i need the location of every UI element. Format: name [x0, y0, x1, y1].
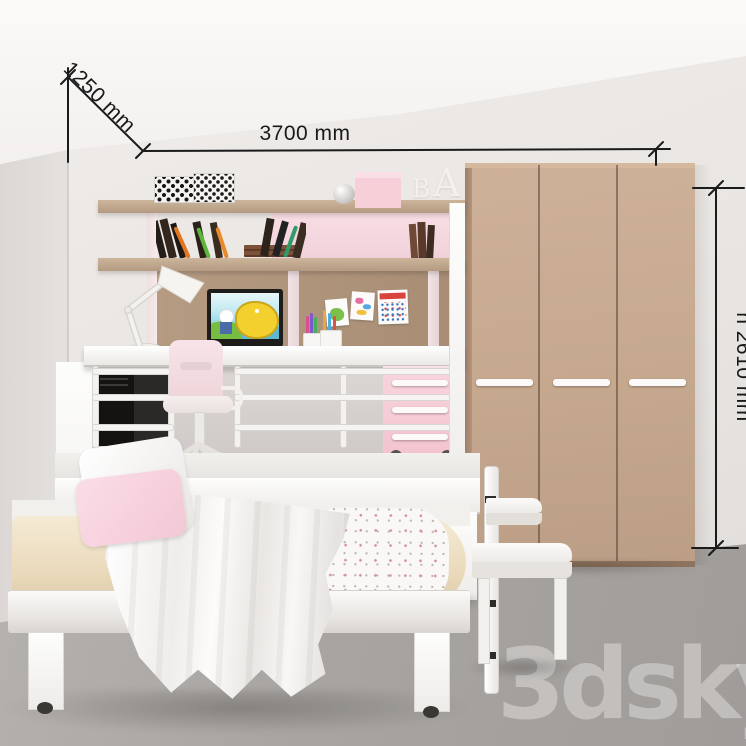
dimension-overlay: 3700 mm 1250 mm h 2610 mm [0, 0, 746, 746]
width-label: 3700 mm [259, 122, 350, 145]
room-render: 3dsky [0, 0, 746, 746]
depth-label: 1250 mm [59, 57, 140, 137]
dimension-line-width [143, 149, 670, 151]
height-label: h 2610 mm [732, 312, 746, 422]
